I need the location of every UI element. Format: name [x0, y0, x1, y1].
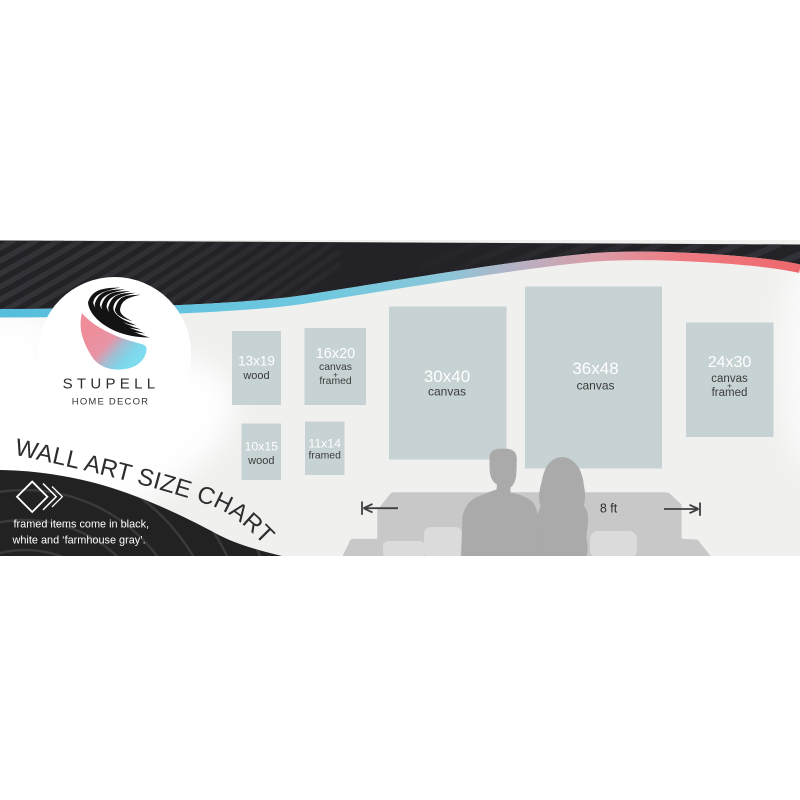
svg-text:24x30: 24x30 — [708, 354, 752, 371]
svg-text:framed: framed — [309, 451, 342, 462]
svg-text:16x20: 16x20 — [316, 346, 356, 362]
svg-text:8 ft: 8 ft — [600, 502, 618, 516]
svg-text:wood: wood — [242, 370, 269, 382]
svg-text:framed: framed — [712, 387, 748, 399]
svg-text:11x14: 11x14 — [308, 436, 341, 450]
svg-text:36x48: 36x48 — [572, 359, 618, 378]
svg-text:canvas: canvas — [576, 379, 614, 393]
svg-text:white and ‘farmhouse gray’.: white and ‘farmhouse gray’. — [12, 535, 146, 547]
svg-text:HOME DECOR: HOME DECOR — [72, 396, 149, 407]
svg-text:wood: wood — [247, 455, 274, 467]
svg-text:canvas: canvas — [428, 385, 466, 399]
svg-text:10x15: 10x15 — [245, 440, 279, 454]
svg-text:framed items come in black,: framed items come in black, — [14, 519, 150, 531]
svg-text:STUPELL: STUPELL — [63, 376, 160, 393]
svg-text:13x19: 13x19 — [238, 354, 275, 369]
svg-text:30x40: 30x40 — [424, 367, 470, 386]
svg-text:framed: framed — [319, 376, 352, 387]
